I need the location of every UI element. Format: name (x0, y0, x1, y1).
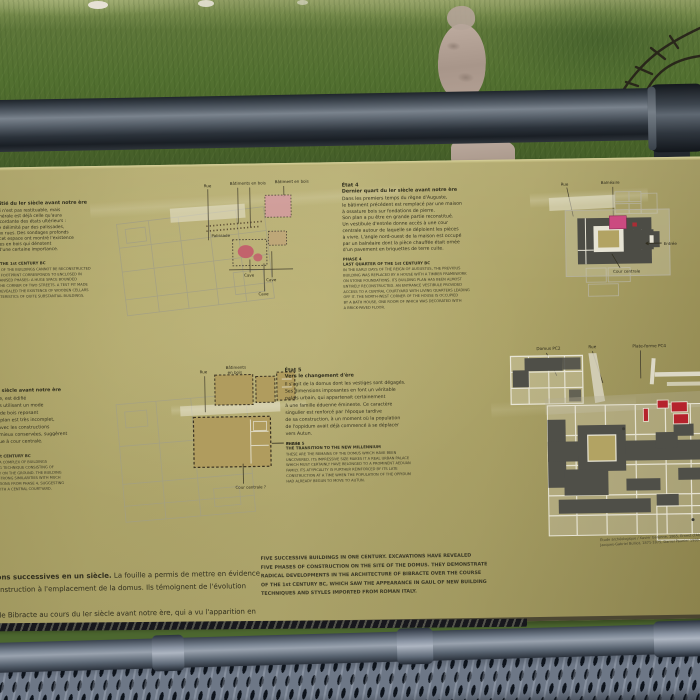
cellar-highlight (253, 253, 262, 261)
french-paragraph: Dans les premiers temps du règne d'Augus… (342, 194, 508, 254)
interpretive-panel: États 1 & 2 Première moitié du Ier siècl… (0, 156, 700, 630)
french-paragraph: Après la conquête romaine, est édifié un… (0, 394, 86, 447)
intro-english-lines: FIVE SUCCESSIVE BUILDINGS IN ONE CENTURY… (261, 550, 542, 598)
plan-etats-1-2: Rue Bâtiments en bois Bâtiment en bois P… (112, 179, 314, 330)
railing-sleeve-joint (396, 628, 433, 665)
photo-of-interpretive-panel: États 1 & 2 Première moitié du Ier siècl… (0, 0, 700, 700)
english-paragraph: THE EXACT DETAIL OF THE BUILDINGS CANNOT… (0, 266, 116, 301)
label-cave: Cave (258, 291, 269, 296)
french-paragraph: Le détail du bâti n'est pas restituable,… (0, 207, 116, 254)
red-room-marker (632, 222, 637, 226)
label-plate-forme-pc4: Plate-forme PC4 (632, 343, 666, 349)
label-batiment-en-bois: Bâtiment en bois (275, 179, 309, 185)
label-cour-centrale: Cour centrale ? (235, 484, 266, 489)
label-rue: Rue (204, 183, 212, 188)
plan-etat-3: Rue Bâtiments en bois Entrée Cour centra… (89, 359, 317, 538)
main-building-dashed (193, 416, 271, 467)
label-domus-pc2: Domus PC2 (536, 346, 561, 351)
street-white-bars (649, 357, 700, 386)
domus-pc2-plan (510, 355, 583, 404)
central-courtyard (588, 435, 616, 461)
label-batiments-en-bois: Bâtiments en bois (230, 180, 266, 186)
plan-etat-5: Domus PC2 Rue Plate-forme PC4 (504, 337, 700, 565)
palisade-dotted-lines (206, 221, 262, 231)
white-stone (88, 1, 108, 9)
railing-sleeve-joint (152, 635, 185, 672)
courtyard-interior (598, 230, 619, 247)
timber-building-outline (265, 195, 291, 217)
intro-french-lead: Cinq constructions successives en un siè… (0, 572, 112, 583)
english-paragraph: IN THE EARLY DAYS OF THE REIGN OF AUGUST… (343, 265, 509, 311)
white-stone (198, 0, 214, 7)
plan-etat-4: Rue Balnéaire (536, 164, 700, 322)
english-paragraph: THESE ARE THE REMAINS OF THE DOMUS WHICH… (286, 449, 481, 484)
label-cour-centrale: Cour centrale (613, 268, 641, 273)
domus-main-plan (547, 399, 700, 542)
label-cave: Cave (244, 272, 255, 277)
english-paragraph: AFTER THE ROMAN CONQUEST, A COMPLEX OF B… (0, 459, 87, 494)
label-balneaire: Balnéaire (601, 180, 620, 185)
timber-buildings-dashed (215, 372, 295, 405)
railing-joint-fitting (647, 83, 700, 152)
label-palissade: Palissade (211, 233, 230, 238)
label-rue: Rue (561, 182, 569, 187)
gray-stone (297, 0, 308, 5)
street-white-band (588, 353, 605, 403)
railing-sleeve-joint (653, 620, 700, 658)
label-cave: Cave (266, 277, 277, 282)
bath-house-room (609, 216, 626, 229)
intro-french-rest: La fouille a permis de mettre en évidenc… (112, 569, 261, 579)
label-entree: Entrée (664, 241, 678, 246)
french-paragraph: Il s'agit de la domus dont les vestiges … (285, 378, 481, 438)
timber-building-outline (268, 231, 286, 245)
entrance-gap (650, 235, 654, 243)
label-rue: Rue (200, 369, 208, 374)
label-en-bois: en bois (228, 370, 243, 375)
street-highlight (549, 195, 616, 211)
label-rue: Rue (588, 344, 596, 349)
street-highlight (170, 204, 246, 223)
